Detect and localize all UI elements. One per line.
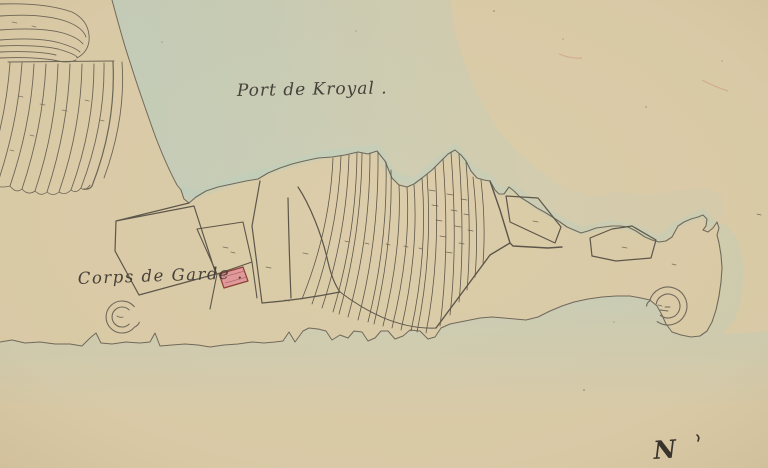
historical-map-drawing: Port de Kroyal . Corps de Garde . N [0,0,768,468]
aging-vignette-overlay [0,0,768,468]
map-canvas: Port de Kroyal . Corps de Garde . N [0,0,768,468]
